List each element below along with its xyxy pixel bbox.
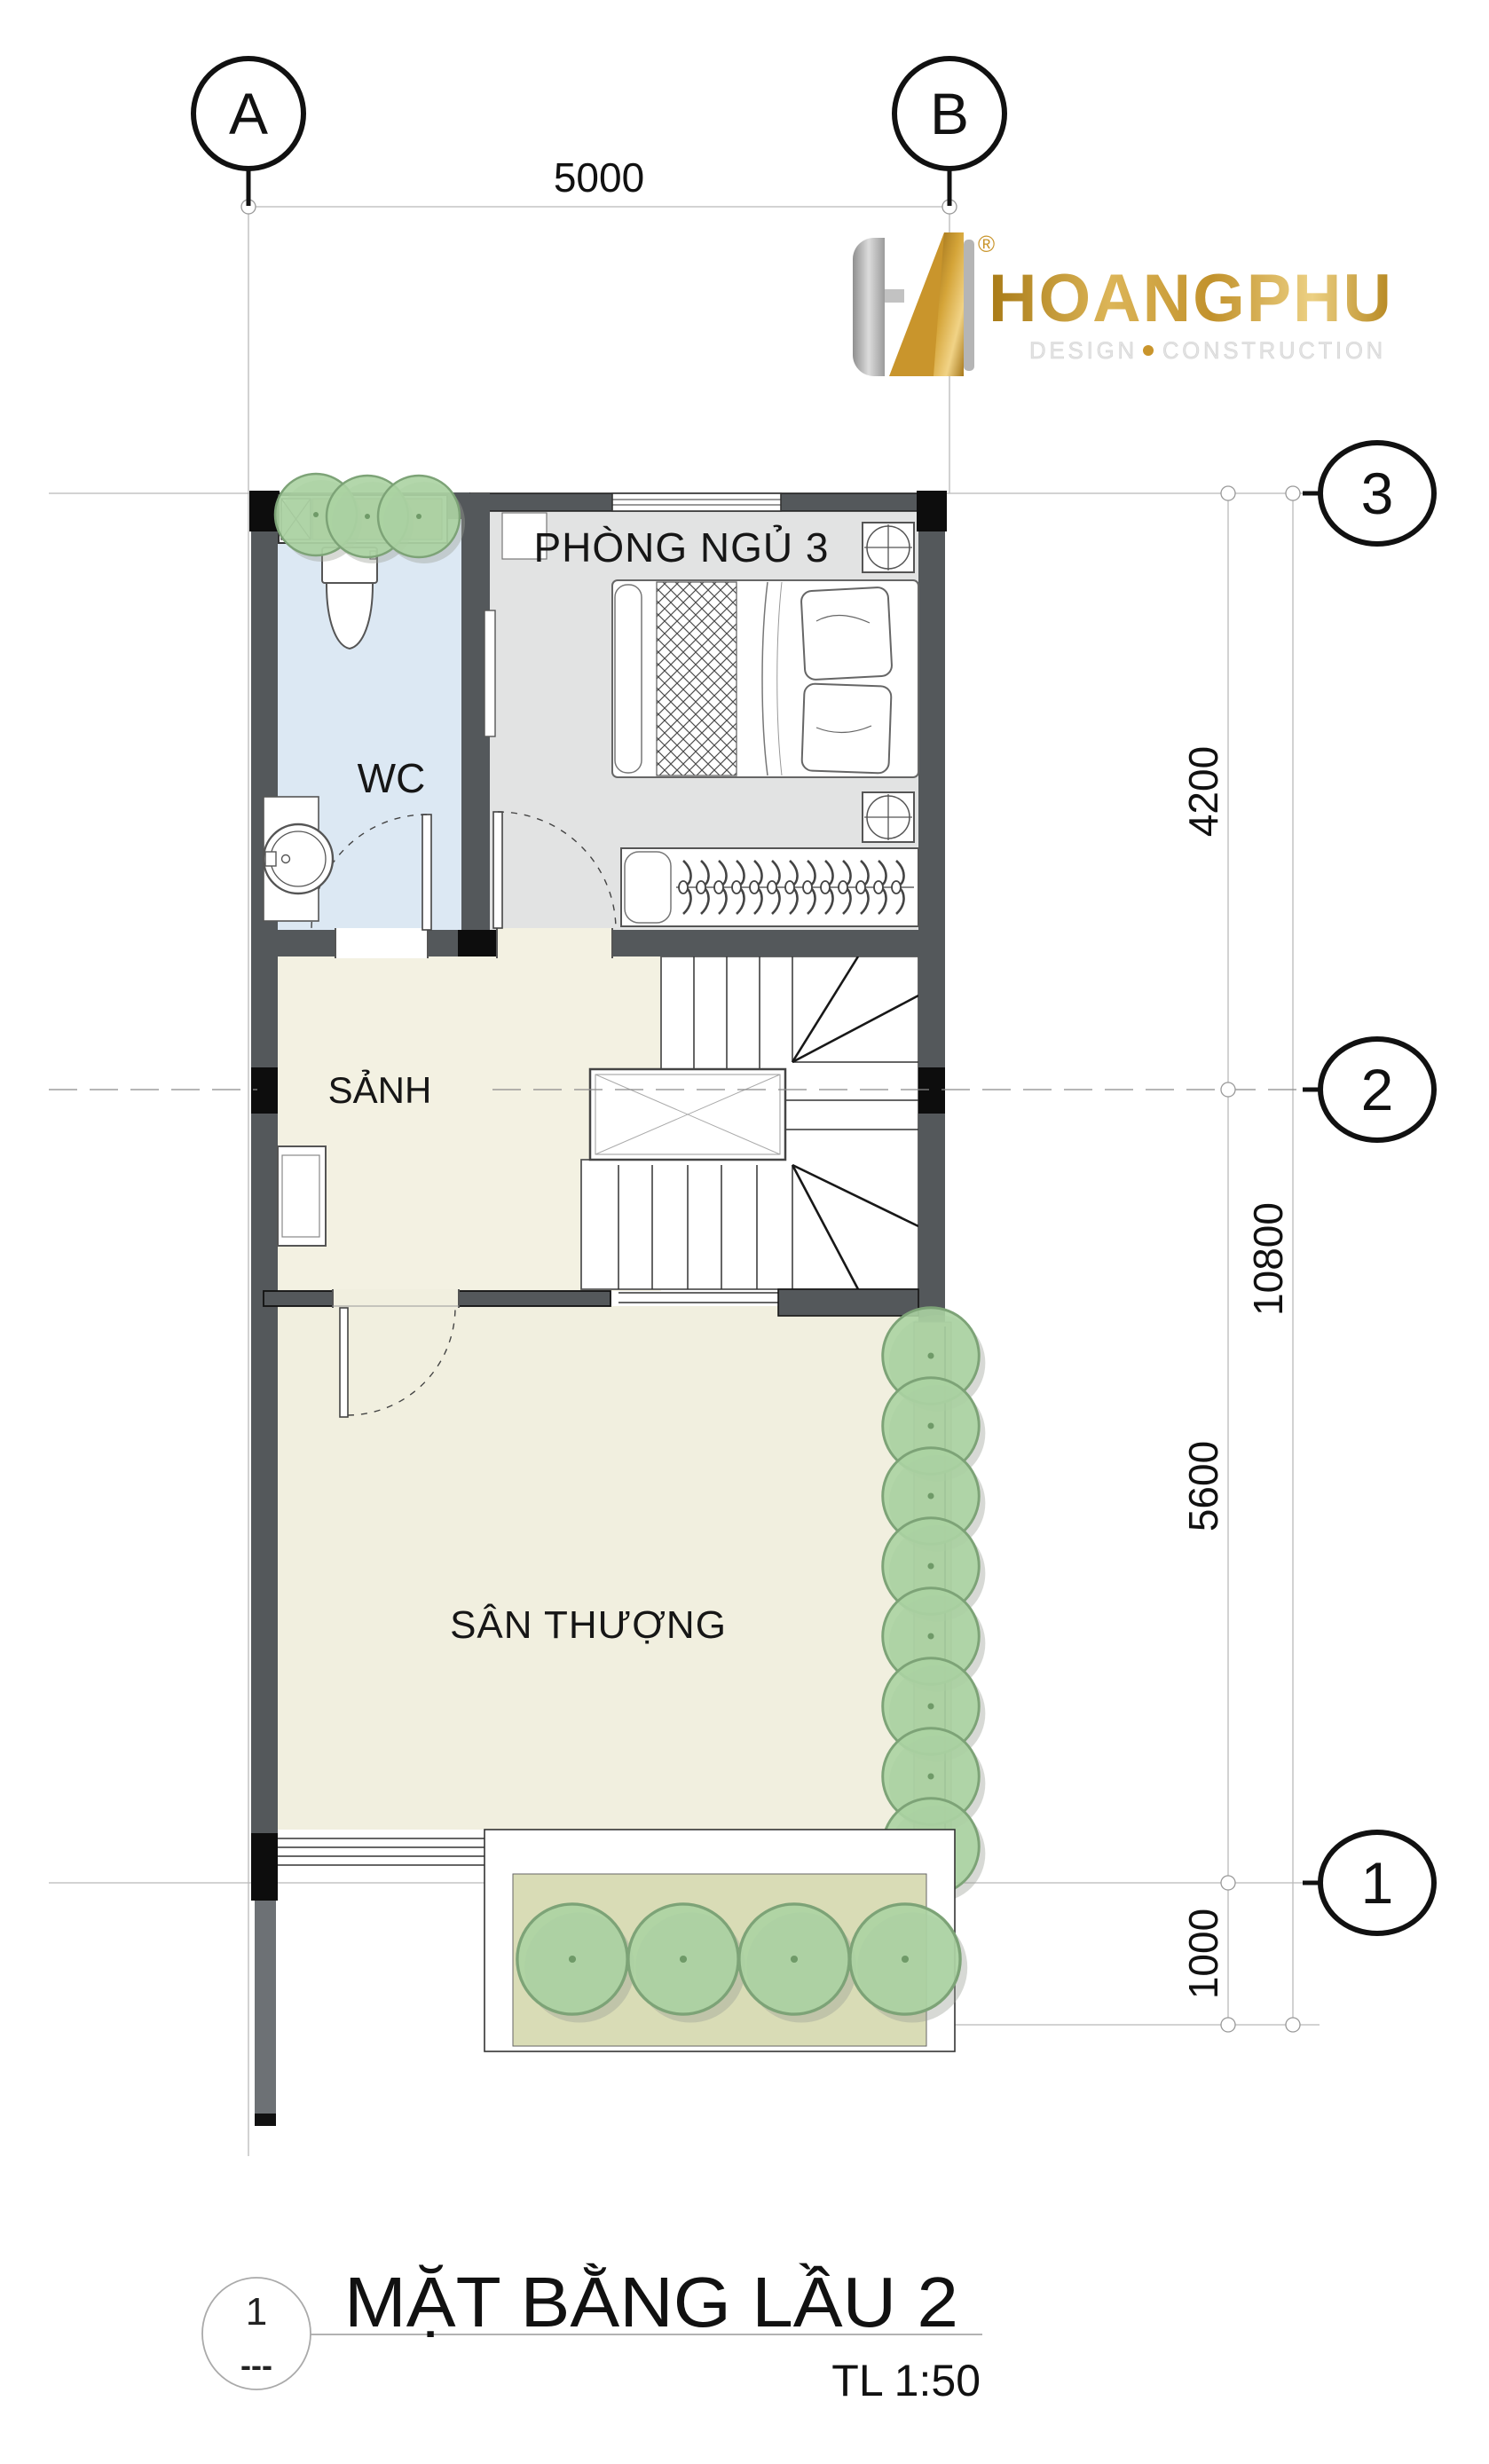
nightstand-bottom bbox=[863, 792, 914, 842]
wall-stub-cap bbox=[255, 2114, 276, 2126]
planter-top bbox=[275, 474, 465, 563]
wall-hall-terrace-a bbox=[264, 1291, 333, 1306]
wall-stub-below bbox=[255, 1901, 276, 2114]
registered-icon: ® bbox=[978, 231, 995, 257]
wall-right bbox=[918, 492, 945, 1326]
dim-10800: 10800 bbox=[1245, 1202, 1291, 1316]
grid-label-3: 3 bbox=[1361, 461, 1394, 526]
terrace-floor bbox=[278, 1306, 945, 1830]
drawing-title: MẶT BẰNG LẦU 2 bbox=[344, 2263, 958, 2342]
room-label-bedroom: PHÒNG NGỦ 3 bbox=[533, 524, 829, 571]
balcony-railing bbox=[278, 1838, 486, 1865]
nightstand-top bbox=[863, 523, 914, 572]
drawing-sheet: A B 3 2 1 5000 4200 5600 1000 10800 PHÒN… bbox=[0, 0, 1489, 2464]
planter-right bbox=[883, 1308, 986, 1902]
grid-label-1: 1 bbox=[1361, 1850, 1394, 1916]
hall-desk bbox=[278, 1146, 326, 1246]
faucet-icon bbox=[265, 852, 276, 866]
dim-4200: 4200 bbox=[1180, 746, 1226, 837]
bed-bolster bbox=[615, 585, 642, 773]
grid-bubble-1: 1 bbox=[1303, 1832, 1434, 1933]
grid-bubble-2: 2 bbox=[1303, 1039, 1434, 1140]
logo-tagline-right: CONSTRUCTION bbox=[1162, 337, 1386, 364]
company-logo: ® HOANGPHU DESIGN CONSTRUCTION bbox=[853, 231, 1393, 376]
wardrobe bbox=[621, 848, 918, 926]
door-leaf bbox=[422, 815, 431, 930]
detail-ref-number: 1 bbox=[246, 2290, 267, 2334]
door-leaf bbox=[340, 1308, 348, 1417]
logo-brand-text: HOANGPHU bbox=[989, 261, 1393, 336]
window-bedroom bbox=[612, 493, 781, 511]
planter-bottom bbox=[485, 1830, 967, 2051]
wall-stair-bottom bbox=[778, 1289, 918, 1316]
stair-void bbox=[590, 1069, 785, 1160]
bed-runner bbox=[657, 582, 737, 775]
wall-mirror bbox=[485, 610, 495, 736]
title-block: 1 --- MẶT BẰNG LẦU 2 TL 1:50 bbox=[202, 2263, 982, 2405]
room-label-terrace: SÂN THƯỢNG bbox=[450, 1603, 727, 1647]
grid-label-a: A bbox=[229, 81, 268, 146]
logo-tagline: DESIGN CONSTRUCTION bbox=[1029, 337, 1386, 364]
grid-label-b: B bbox=[930, 81, 969, 146]
detail-ref-sub: --- bbox=[240, 2347, 272, 2383]
dim-top-width: 5000 bbox=[554, 154, 644, 201]
logo-tagline-left: DESIGN bbox=[1029, 337, 1138, 364]
grid-label-2: 2 bbox=[1361, 1057, 1394, 1122]
wall-hall-terrace-b bbox=[459, 1291, 611, 1306]
stair-railing bbox=[618, 1293, 778, 1303]
floor-plan-canvas: A B 3 2 1 5000 4200 5600 1000 10800 PHÒN… bbox=[0, 0, 1489, 2464]
tagline-bullet-icon bbox=[1143, 345, 1154, 356]
dim-5600: 5600 bbox=[1180, 1441, 1226, 1531]
grid-bubble-3: 3 bbox=[1303, 443, 1434, 544]
door-leaf bbox=[493, 812, 502, 928]
dim-1000: 1000 bbox=[1180, 1909, 1226, 1999]
wall-left bbox=[251, 493, 278, 1837]
drawing-scale: TL 1:50 bbox=[831, 2356, 981, 2405]
room-label-wc: WC bbox=[358, 755, 426, 801]
room-label-hall: SẢNH bbox=[328, 1068, 432, 1111]
logo-mark bbox=[853, 232, 974, 376]
bed bbox=[612, 580, 918, 777]
grid-bubble-b: B bbox=[894, 59, 1004, 206]
grid-bubble-a: A bbox=[193, 59, 303, 206]
